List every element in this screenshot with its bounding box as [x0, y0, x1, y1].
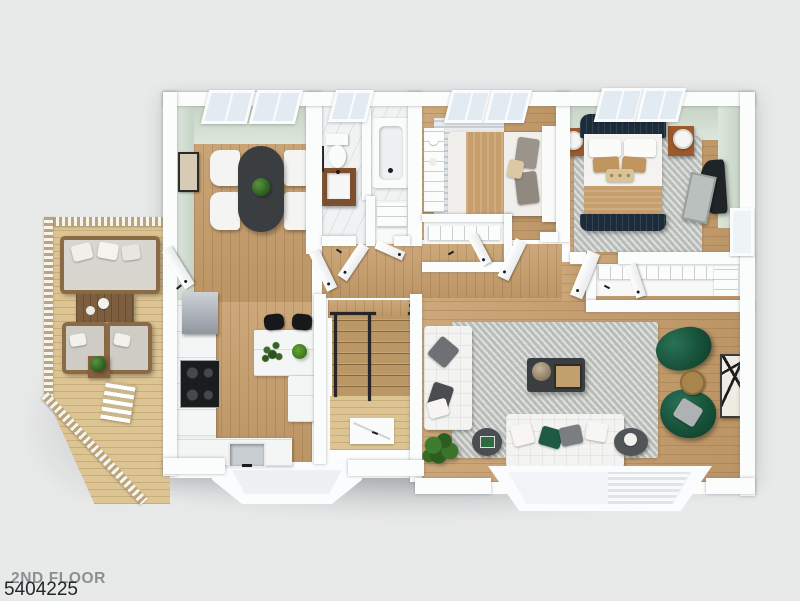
- toilet-tank: [326, 134, 348, 145]
- bathroom-window: [328, 90, 374, 122]
- dining-wall-art: [178, 152, 199, 192]
- kitchen-island-return: [288, 376, 316, 422]
- window-mullion: [658, 91, 667, 119]
- stair-railing-center: [368, 315, 371, 401]
- master-patterned-pillow: [606, 169, 634, 182]
- window-mullion: [616, 91, 625, 119]
- table-bowl: [86, 306, 95, 315]
- wall-bath-bottom-right: [394, 236, 410, 246]
- range-hood: [182, 292, 218, 334]
- master-footboard: [580, 214, 666, 231]
- wall-bed2-right: [556, 92, 570, 242]
- bedroom2-window: [484, 90, 532, 123]
- wall-bed2-closet-top: [422, 214, 512, 222]
- master-window: [636, 88, 686, 122]
- wall-bottom-living-left: [415, 478, 491, 494]
- wall-bed2-closet-bottom: [422, 262, 512, 272]
- side-table-vase: [624, 433, 637, 446]
- window-mullion: [273, 93, 282, 121]
- door-handle: [482, 258, 486, 262]
- gold-side-table: [680, 370, 705, 395]
- wall-dining-right: [306, 92, 322, 254]
- master-pillow: [624, 139, 656, 157]
- dining-chair: [210, 150, 240, 186]
- dining-window: [249, 90, 303, 124]
- master-throw-blanket: [584, 186, 662, 216]
- outdoor-armchair: [106, 322, 152, 374]
- vanity-faucet: [336, 170, 340, 174]
- wall-bed2-entry: [540, 232, 558, 242]
- dining-chair: [210, 192, 240, 230]
- bar-stool: [291, 313, 312, 331]
- wall-master-closet-bottom: [586, 300, 754, 312]
- wall-stair-right: [410, 294, 422, 482]
- stair-railing-left: [334, 315, 337, 397]
- floorplan-render: 2ND FLOOR 5404225: [0, 0, 800, 600]
- tub-drain: [388, 168, 393, 173]
- wall-linen-side: [366, 196, 375, 246]
- master-closet-side-shelf: [714, 266, 738, 300]
- coffee-table-tray: [554, 364, 582, 389]
- wall-exterior-left: [163, 92, 177, 476]
- side-table-plant: [90, 356, 106, 372]
- staircase: [332, 316, 410, 398]
- side-table-books: [480, 436, 495, 448]
- sofa-pillow-white: [585, 420, 609, 442]
- shelf-decor: [429, 136, 438, 145]
- table-bowl: [98, 298, 109, 309]
- wall-bottom-kitchen: [163, 458, 225, 474]
- vanity-sink: [327, 173, 350, 199]
- window-mullion: [225, 93, 234, 121]
- coffee-table-plant: [532, 362, 551, 381]
- door-handle: [184, 279, 188, 283]
- door-handle: [576, 289, 580, 293]
- linen-closet-shelves: [377, 203, 407, 227]
- deck-stairs: [100, 381, 136, 423]
- toilet-bowl: [329, 145, 346, 168]
- door-handle: [636, 290, 640, 294]
- wall-bottom-stair: [348, 460, 424, 476]
- living-floor-plant: [420, 430, 464, 468]
- counter-herb-plant: [258, 338, 288, 368]
- deck-railing-left: [44, 217, 53, 397]
- window-mullion: [348, 93, 356, 119]
- wall-stair-left: [314, 294, 326, 464]
- dining-centerpiece-plant: [252, 178, 270, 196]
- door-handle: [343, 270, 347, 274]
- window-mullion: [465, 93, 474, 120]
- master-pillow: [589, 139, 621, 157]
- bed-runner: [466, 132, 504, 216]
- bedroom2-headboard: [542, 126, 557, 222]
- wall-bath-bottom-left: [322, 236, 356, 246]
- wall-exterior-right: [740, 92, 755, 496]
- wall-bath-right: [408, 92, 422, 246]
- door-handle: [397, 253, 401, 257]
- counter-potted-plant: [292, 344, 307, 359]
- deck-railing-top: [44, 217, 170, 226]
- wall-bottom-living-right: [706, 478, 755, 494]
- master-lamp-right: [673, 129, 693, 149]
- window-mullion: [505, 93, 514, 120]
- outdoor-sofa-pillow: [97, 241, 119, 260]
- outdoor-sofa-pillow: [121, 244, 141, 261]
- master-side-window: [730, 208, 754, 256]
- sink-bay-glass: [232, 470, 342, 494]
- cooktop: [180, 360, 220, 408]
- sink-faucet: [242, 464, 252, 467]
- door-handle: [502, 270, 506, 274]
- door-handle: [327, 282, 331, 286]
- bar-stool: [263, 313, 285, 331]
- bedroom2-closet-shelves: [428, 226, 500, 240]
- watermark-id: 5404225: [4, 579, 78, 601]
- dining-window: [201, 90, 255, 124]
- shelf-decor: [429, 158, 437, 166]
